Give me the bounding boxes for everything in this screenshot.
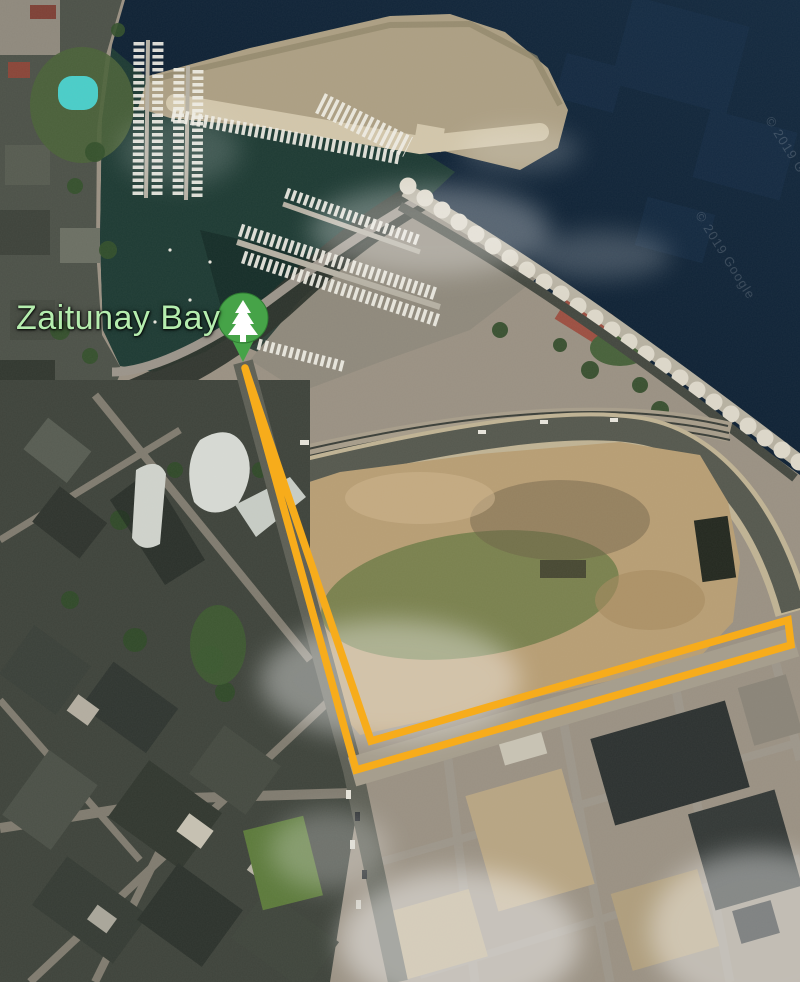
satellite-basemap: © 2019 Google © 2019 Google	[0, 0, 800, 982]
map-canvas[interactable]: © 2019 Google © 2019 Google Zaitunay Bay	[0, 0, 800, 982]
grain-overlay	[0, 0, 800, 982]
